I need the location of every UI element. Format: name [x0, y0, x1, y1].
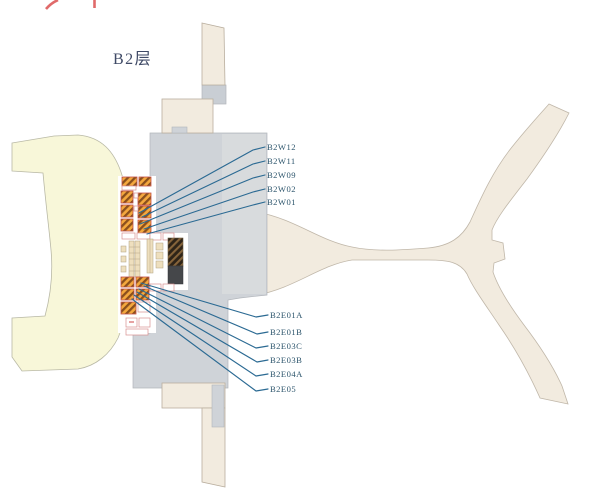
escalator-unit	[121, 266, 126, 272]
cropped-red-marks	[46, 0, 95, 9]
north-block-notch	[172, 127, 187, 133]
room	[134, 193, 138, 198]
terminal-core-light-half	[222, 134, 266, 294]
concourse-wings-shape	[257, 104, 569, 404]
south-inner-gray-strip	[212, 385, 224, 427]
floor-title: B2层	[113, 51, 152, 68]
stair-unit	[121, 219, 133, 231]
north-block-beige	[162, 99, 213, 133]
floor-plan-canvas: B2W12 B2W11 B2W09 B2W02 B2W01 B2E01A B2E…	[0, 0, 600, 501]
label-b2e05: B2E05	[270, 384, 296, 394]
stair-unit	[136, 277, 149, 287]
label-b2e01b: B2E01B	[270, 327, 302, 337]
label-b2w09: B2W09	[267, 170, 296, 180]
label-b2w12: B2W12	[267, 142, 296, 152]
room	[126, 329, 148, 335]
label-b2e03c: B2E03C	[270, 341, 302, 351]
lift-unit	[156, 252, 163, 259]
stair-unit	[121, 302, 136, 314]
escalator-unit	[121, 256, 126, 262]
label-b2e01a: B2E01A	[270, 310, 303, 320]
label-b2e04a: B2E04A	[270, 369, 303, 379]
service-shaft-solid	[168, 266, 183, 284]
room	[122, 233, 135, 239]
floor-plan-page: B2W12 B2W11 B2W09 B2W02 B2W01 B2E01A B2E…	[0, 0, 600, 501]
north-tower-beige	[202, 23, 225, 85]
label-b2e03b: B2E03B	[270, 355, 302, 365]
stair-unit	[121, 277, 134, 287]
escalator-unit	[121, 246, 126, 252]
label-b2w01: B2W01	[267, 197, 296, 207]
room	[122, 186, 136, 190]
lift-unit	[156, 243, 163, 250]
room	[134, 206, 138, 211]
stair-unit	[121, 191, 133, 203]
stair-unit	[122, 177, 137, 186]
room	[139, 318, 150, 327]
stair-unit	[121, 289, 134, 300]
callout-labels-east: B2E01A B2E01B B2E03C B2E03B B2E04A B2E05	[270, 310, 303, 394]
label-b2w11: B2W11	[267, 156, 296, 166]
stair-unit	[138, 193, 151, 205]
stair-unit	[121, 205, 133, 217]
cropped-red-stroke-left	[46, 0, 58, 9]
landside-west-shape	[12, 135, 127, 371]
lift-unit	[156, 261, 163, 268]
callout-labels-west: B2W12 B2W11 B2W09 B2W02 B2W01	[267, 142, 296, 207]
concourse-wings	[257, 104, 569, 404]
stair-unit	[139, 177, 151, 186]
landside-west-area	[12, 135, 127, 371]
label-b2w02: B2W02	[267, 184, 296, 194]
service-stair-shaft	[168, 238, 183, 266]
